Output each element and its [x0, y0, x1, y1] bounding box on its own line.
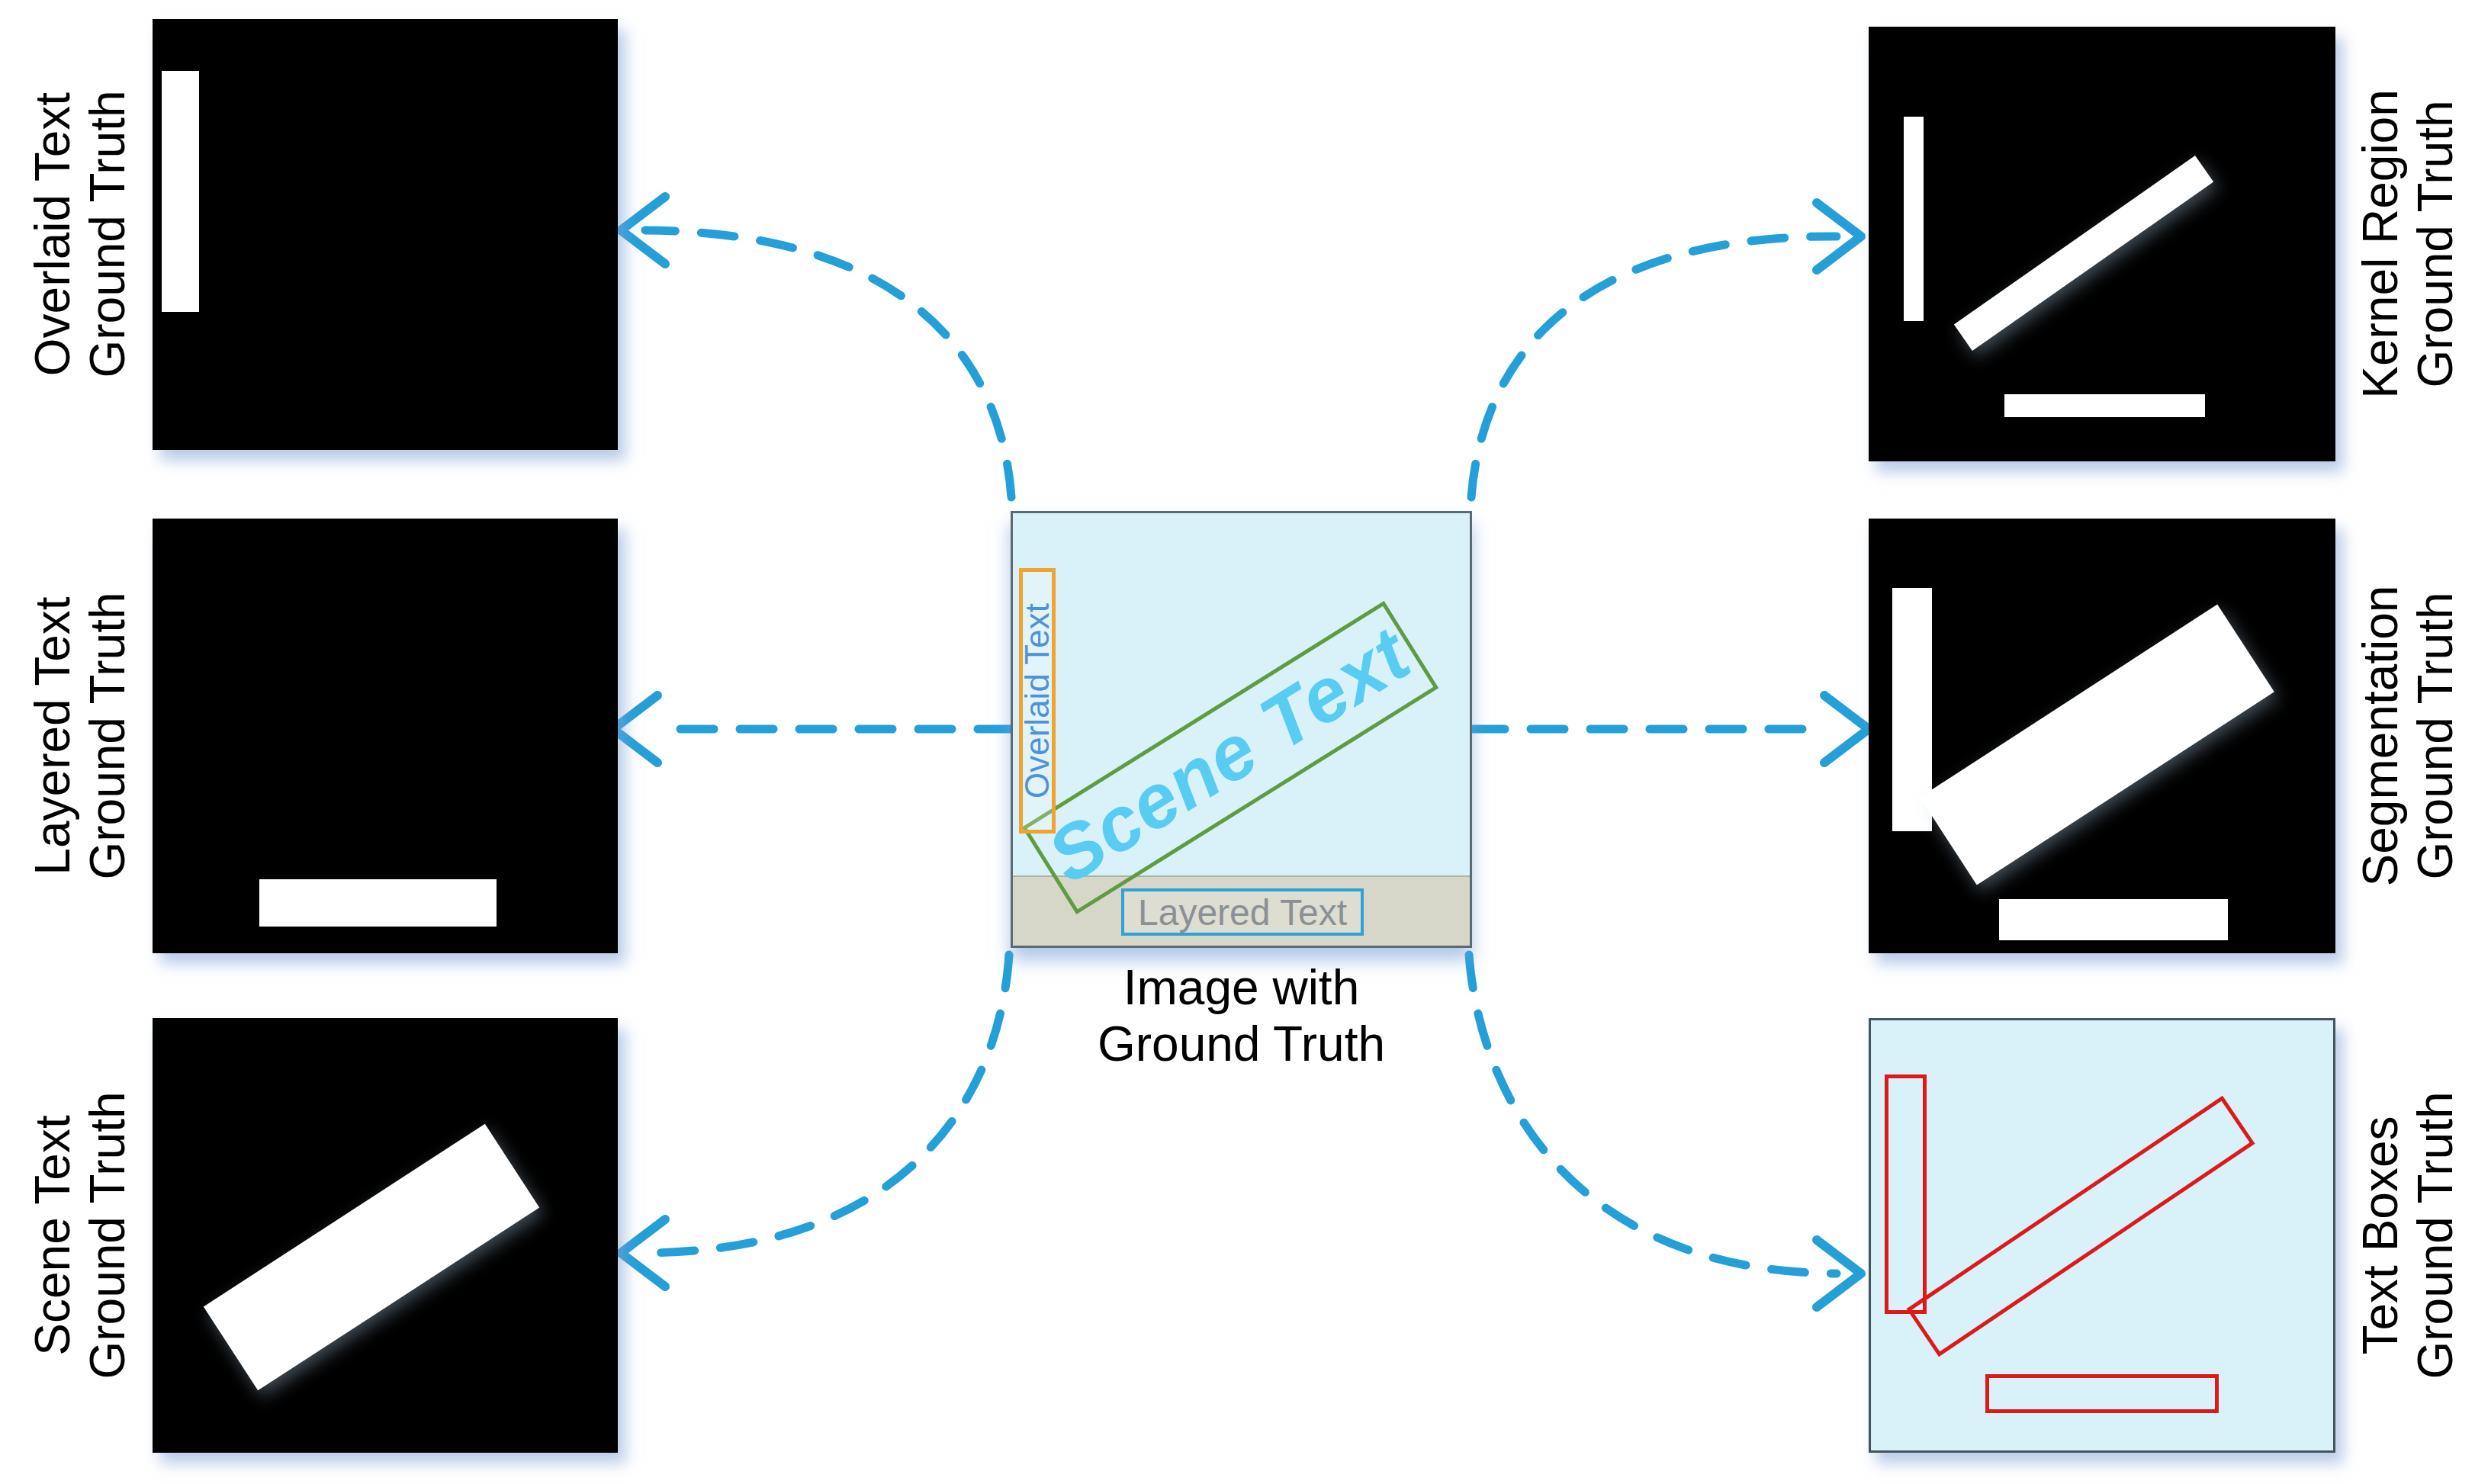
scene-text-mask-rect: [204, 1124, 539, 1391]
overlaid-text-mask-bar: [162, 71, 199, 312]
text-boxes-gt-label: Text Boxes Ground Truth: [2347, 1014, 2469, 1457]
segmentation-mask-horizontal-bar: [1999, 899, 2228, 940]
center-to-textboxes-gt-arrow: [1469, 955, 1861, 1307]
center-to-segmentation-gt-arrow: [1471, 695, 1869, 763]
layered-text-gt-label: Layered Text Ground Truth: [19, 515, 141, 957]
kernel-mask-diagonal-bar: [1954, 156, 2213, 351]
overlaid-text-tag: Overlaid Text: [1018, 570, 1056, 832]
overlaid-text-gt-panel: [153, 19, 618, 450]
center-to-kernel-gt-arrow: [1471, 203, 1861, 497]
layered-text-tag: Layered Text: [1138, 891, 1347, 933]
layered-text-gt-panel: [153, 519, 618, 953]
text-box-rotated: [1906, 1096, 2255, 1357]
text-box-horizontal: [1985, 1374, 2219, 1413]
scene-text-gt-panel: [153, 1018, 618, 1453]
layered-text-annotation-box: Layered Text: [1121, 888, 1364, 936]
annotated-image: Scene Text Overlaid Text Layered Text: [1011, 511, 1472, 948]
overlaid-text-gt-label: Overlaid Text Ground Truth: [19, 13, 141, 455]
text-boxes-gt-panel: [1869, 1018, 2335, 1453]
center-image-caption: Image with Ground Truth: [1011, 959, 1472, 1072]
overlaid-text-annotation-box: Overlaid Text: [1019, 568, 1056, 834]
layered-text-mask-bar: [259, 879, 497, 927]
center-to-overlaid-gt-arrow: [621, 197, 1011, 497]
center-to-scene-gt-arrow: [621, 955, 1009, 1286]
text-box-vertical: [1885, 1074, 1927, 1314]
scene-text-annotation-box: Scene Text: [1022, 601, 1438, 914]
center-to-layered-gt-arrow: [613, 695, 1011, 763]
segmentation-gt-panel: [1869, 519, 2335, 953]
scene-text-gt-label: Scene Text Ground Truth: [19, 1014, 141, 1457]
kernel-region-gt-label: Kernel Region Ground Truth: [2347, 23, 2469, 465]
kernel-mask-horizontal-bar: [2004, 394, 2205, 417]
segmentation-mask-diagonal-rect: [1920, 604, 2274, 885]
kernel-region-gt-panel: [1869, 27, 2335, 461]
scene-text-handwriting: Scene Text: [1033, 610, 1425, 901]
kernel-mask-vertical-bar: [1904, 117, 1924, 321]
segmentation-gt-label: Segmentation Ground Truth: [2347, 515, 2469, 957]
figure-canvas: Overlaid Text Ground Truth Layered Text …: [0, 0, 2475, 1484]
